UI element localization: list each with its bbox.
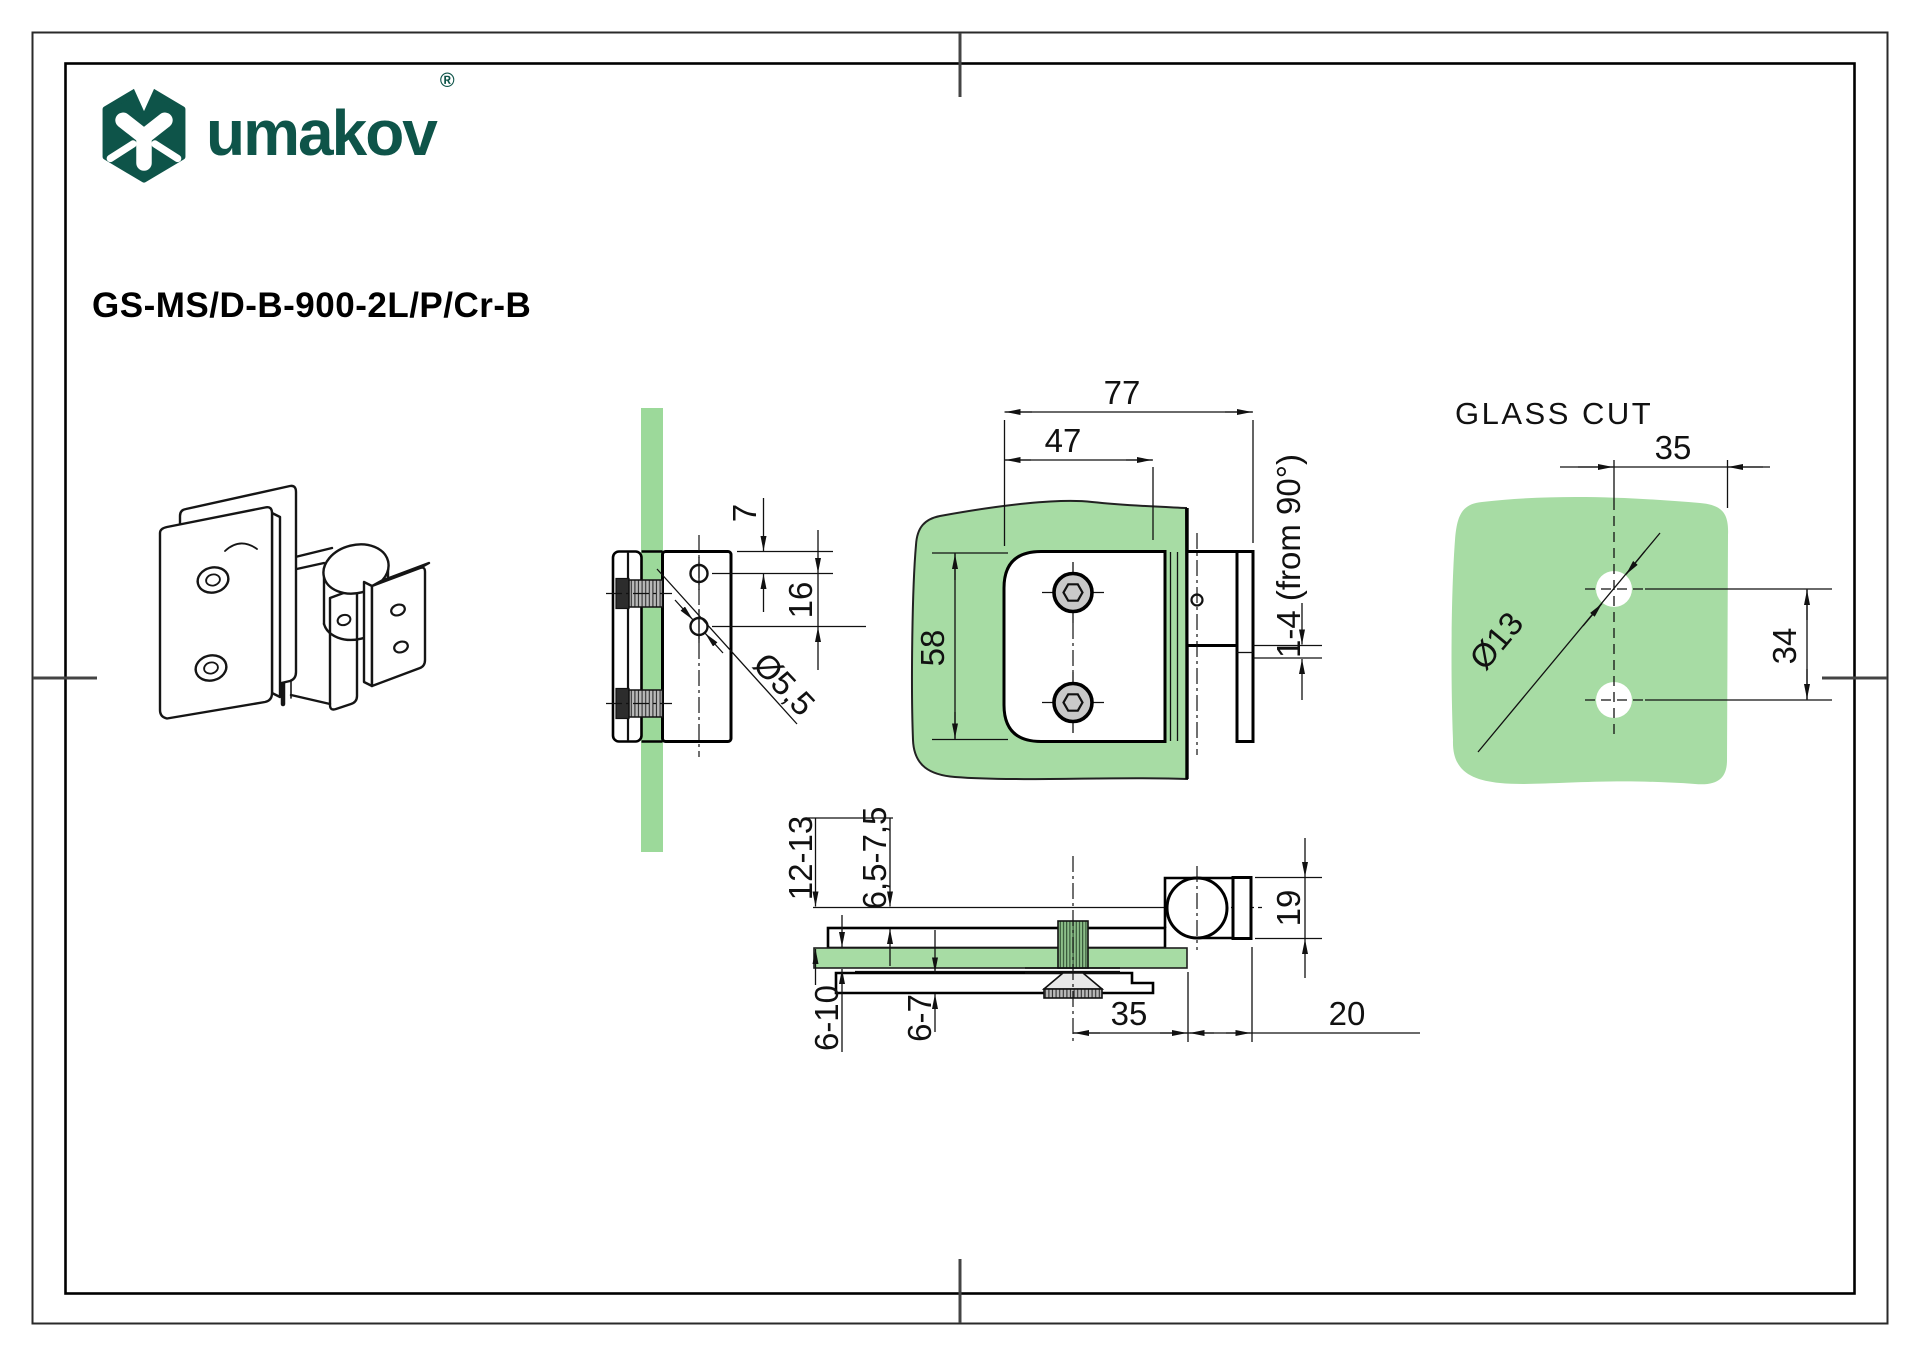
drawing-page: 7 16 Ø5,5 — [0, 0, 1920, 1357]
clamp-screw — [606, 689, 672, 719]
dim-screw-to-edge: 35 — [1111, 995, 1148, 1032]
dim-pivot-to-glass: 12-13 — [782, 816, 819, 900]
umakov-logo-icon — [98, 82, 190, 184]
technical-drawing: 7 16 Ø5,5 — [0, 0, 1920, 1357]
umakov-logo: umakov® — [98, 82, 451, 184]
dim-bottom-gap: 6-7 — [901, 994, 938, 1042]
dim-glass-thickness: 6-10 — [808, 985, 845, 1051]
clamp-screw — [606, 579, 672, 609]
dim-hole-spacing-y: 34 — [1766, 628, 1803, 665]
dim-clamp-range: 6,5-7,5 — [856, 807, 893, 910]
glass-panel-plan — [814, 948, 1187, 968]
dim-plate-width: 47 — [1045, 422, 1082, 459]
glass-cut-view: GLASS CUT 35 34 Ø13 — [1452, 396, 1832, 784]
dim-adjustment: 1-4 (from 90°) — [1270, 454, 1307, 658]
dim-hole-spacing: 16 — [782, 582, 819, 619]
dim-total-width: 77 — [1104, 374, 1141, 411]
dim-knuckle-height: 19 — [1270, 890, 1307, 927]
side-view: 7 16 Ø5,5 — [606, 408, 866, 852]
dim-plate-height: 58 — [914, 630, 951, 667]
brand-name: umakov® — [206, 101, 451, 165]
bottom-view: 12-13 6,5-7,5 6-10 6-7 35 20 — [782, 807, 1420, 1052]
registered-mark: ® — [440, 70, 455, 92]
dim-hole-offset-top: 7 — [726, 504, 763, 522]
product-code: GS-MS/D-B-900-2L/P/Cr-B — [92, 286, 531, 326]
glass-cut-title: GLASS CUT — [1455, 396, 1653, 431]
isometric-view — [160, 486, 429, 719]
dim-hole-diameter: Ø5,5 — [746, 645, 822, 722]
glass-panel-side — [641, 408, 663, 852]
dim-wall-offset: 20 — [1329, 995, 1366, 1032]
front-view: 77 47 58 1-4 (from 90°) — [912, 374, 1322, 779]
dim-hole-offset-x: 35 — [1655, 429, 1692, 466]
